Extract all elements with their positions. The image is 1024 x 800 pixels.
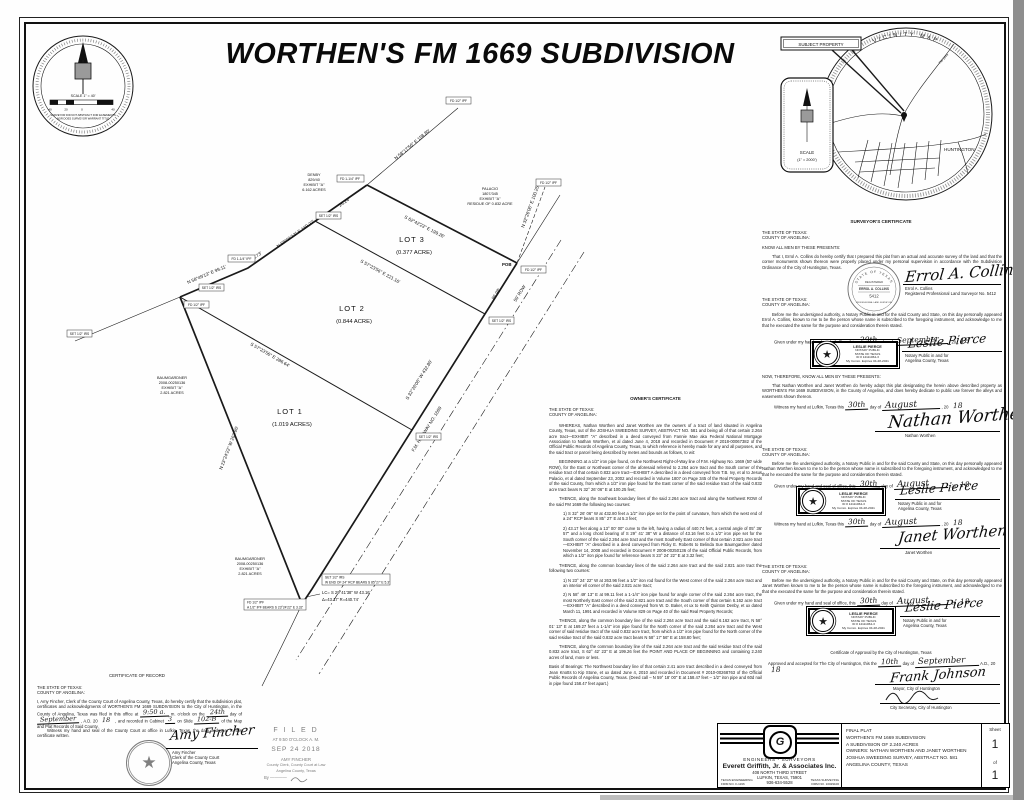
seal-bottom-text: PROFESSIONAL LAND SURVEYOR	[856, 301, 893, 304]
monument-label: SET 1/2" IRS	[319, 214, 339, 218]
scan-edge-bottom	[600, 795, 1013, 800]
bearing-label: N 23°24'22" W 263.96'	[218, 425, 239, 470]
svg-text:EXHIBIT "A": EXHIBIT "A"	[480, 197, 502, 201]
sheet-of: of	[981, 760, 1009, 765]
acknowledgment-text: Before me the undersigned authority, a N…	[762, 312, 1002, 328]
county-line: COUNTY OF ANGELINA:	[762, 569, 810, 574]
notary-stamp: ★ LESLIE PIERCE NOTARY PUBLIC STATE OF T…	[808, 608, 894, 634]
hand-slide: 102-B	[194, 716, 220, 724]
record-text: day of	[230, 711, 242, 716]
certificate-course: 2) 43.17 feet along a 13° 00' 00" curve …	[563, 526, 762, 559]
hand-cabinet: 3	[165, 717, 175, 724]
firm-type: ENGINEERS - SURVEYORS	[720, 757, 839, 762]
bar-scale-tick: 40	[48, 108, 52, 112]
bar-scale-label: SCALE 1" = 40'	[71, 94, 96, 98]
notary-seal-star-icon: ★	[812, 610, 834, 632]
bar-scale-tick: 40	[111, 108, 115, 112]
north-arrow-scale: SCALE 1" = 40' 40 20 0 40 SURVEYOR DID N…	[33, 36, 133, 136]
notary-stamp-text: LESLIE PIERCE NOTARY PUBLIC STATE OF TEX…	[827, 492, 880, 511]
acknowledgment-text: Before me the undersigned authority, a N…	[762, 461, 1002, 477]
adjoiner-denby: DENBY 829/40 EXHIBIT "A" 6.162 ACRES	[302, 173, 326, 192]
certificate-course: 2) N 58° 49' 13" E at 99.11 feet a 1-1/4…	[563, 592, 762, 614]
svg-text:EXHIBIT "A": EXHIBIT "A"	[240, 567, 262, 571]
adjoiner-baumgardner-1: BAUMGARDNER 2008-00250136 EXHIBIT "A" 2.…	[157, 376, 187, 395]
notary-stamp: ★ LESLIE PIERCE NOTARY PUBLIC STATE OF T…	[812, 341, 898, 367]
monument-label: SET 1/2" IRS	[325, 576, 345, 580]
surveyor-disclaimer: SURVEYOR DID NOT ABSTRACT FOR EASEMENTS	[50, 113, 116, 117]
bearing-label: S 57°23'56" E 286.64'	[250, 342, 291, 369]
monument-label: SET 1/2" IRS	[492, 319, 512, 323]
dedication-text: That Nathan Worthen and Janet Worthen do…	[762, 383, 1002, 399]
vicinity-scale-badge: SCALE (1" = 2000')	[781, 78, 833, 172]
filed-by-line: By ————	[250, 775, 342, 781]
day-of: day of	[870, 522, 881, 527]
badge-scale-label: SCALE	[800, 150, 814, 155]
hand-month: September	[37, 716, 79, 724]
signature-rule	[166, 748, 258, 749]
notary-stamp: ★ LESLIE PIERCE NOTARY PUBLIC STATE OF T…	[798, 488, 884, 514]
signature-rule	[880, 703, 1000, 704]
hand-day: 30th	[857, 598, 881, 607]
sheet-number: 1	[981, 737, 1009, 751]
hand-year: 18	[768, 666, 784, 673]
notary-line: My Comm. Expires 04-28-2021	[837, 627, 890, 631]
svg-text:RESIDUE OF 0.832 ACRE: RESIDUE OF 0.832 ACRE	[467, 202, 513, 206]
day-of: day of	[881, 601, 892, 606]
notary-seal-star-icon: ★	[802, 490, 824, 512]
record-text: , and recorded in Cabinet	[115, 718, 164, 723]
svg-text:EXHIBIT "A": EXHIBIT "A"	[162, 386, 184, 390]
seal-name: ERROL A. COLLINS	[859, 287, 889, 291]
filed-word: F I L E D	[250, 726, 342, 737]
segment-distance: 26.24'	[338, 197, 351, 208]
surveyor-seal: STATE OF TEXAS REGISTERED ERROL A. COLLI…	[848, 263, 900, 315]
acknowledgment-text: Before me the undersigned authority, a N…	[762, 578, 1002, 594]
bearing-label: N 58°17'56" E 158.80'	[393, 128, 431, 161]
hand-day: 30th	[845, 402, 869, 411]
secretary-caption: City Secretary, City of Huntington	[890, 705, 952, 710]
day-of: day of	[903, 661, 914, 666]
monument-label: SET 1/2" IRS	[70, 332, 90, 336]
monument-label: FD 1/2" IPF	[247, 601, 264, 605]
signature-rule	[902, 351, 1002, 352]
lot1-label: LOT 1	[277, 407, 303, 416]
monument-note: A 1/2" IPF BEARS S 23°24'22" E 3.32'	[247, 606, 303, 610]
bearing-label: N 58°01'13" E 169.27'	[276, 219, 316, 249]
monument-label: SET 1/2" IRS	[202, 286, 222, 290]
svg-text:BAUMGARDNER: BAUMGARDNER	[235, 557, 265, 561]
monument-label: FD 1/2" IPF	[450, 99, 467, 103]
certificate-paragraph: WHEREAS, Nathan Worthen and Janet Worthe…	[549, 423, 762, 456]
county-line: COUNTY OF ANGELINA:	[37, 690, 85, 695]
svg-text:2.821 ACRES: 2.821 ACRES	[160, 391, 184, 395]
county-line: COUNTY OF ANGELINA:	[762, 235, 810, 240]
county-line: COUNTY OF ANGELINA:	[549, 412, 762, 417]
certificate-paragraph: BEGINNING at a 1/2" iron pipe found, on …	[549, 459, 762, 492]
notary-caption: Angelina County, Texas	[905, 358, 949, 363]
certificate-paragraph: THENCE, along the common boundary line o…	[549, 618, 762, 640]
curve-data-label: Δ=43.17' R=440.74'	[322, 597, 359, 602]
witness-pre: Witness my hand at Lufkin, Texas this	[774, 405, 844, 410]
filed-time: AT 9:50 O'CLOCK A. M.	[250, 737, 342, 744]
monument-label: FD 1/2" IPF	[540, 181, 557, 185]
firm-eng-line: FIRM NO. F-1196	[721, 783, 753, 787]
svg-text:BAUMGARDNER: BAUMGARDNER	[157, 376, 187, 380]
svg-text:2.821 ACRES: 2.821 ACRES	[238, 572, 262, 576]
owners-certificate: OWNER'S CERTIFICATE THE STATE OF TEXAS: …	[549, 396, 762, 686]
svg-text:PALACIO: PALACIO	[482, 187, 498, 191]
janet-name-caption: Janet Worthen	[905, 550, 932, 555]
monument-label: FD 1/2" IPF	[188, 303, 205, 307]
page-title: WORTHEN'S FM 1669 SUBDIVISION	[200, 38, 760, 71]
certificate-paragraph: THENCE, along the common boundary line o…	[549, 644, 762, 660]
mayor-caption: Mayor, City of Huntington	[893, 686, 940, 691]
row-width-label: 50' ROW	[513, 284, 527, 303]
monument-label: FD 1-1/4" IPF	[231, 257, 251, 261]
lot2-label: LOT 2	[339, 304, 365, 313]
signature-rule	[900, 616, 1000, 617]
signature-rule	[903, 284, 1001, 285]
surveyor-disclaimer: NOR DOES SURVEYOR WARRANT TITLE	[57, 117, 110, 121]
bar-scale-tick: 0	[81, 108, 83, 112]
svg-text:EXHIBIT "A": EXHIBIT "A"	[304, 183, 326, 187]
seal-registered: REGISTERED	[865, 280, 883, 284]
county-court-seal: ★	[126, 740, 172, 786]
hand-year: 18	[99, 718, 113, 724]
bearing-label: N 58°49'13" E 99.11'	[186, 264, 227, 285]
adjoiner-baumgardner-2: BAUMGARDNER 2008-00250136 EXHIBIT "A" 2.…	[235, 557, 265, 576]
curve-chord-label: LC= S 29°41'38" W 43.16'	[322, 590, 371, 595]
certificate-paragraph: THENCE, along the common boundary lines …	[549, 563, 762, 574]
bearing-label: S 32°26'06" W 432.80'	[405, 359, 434, 401]
certificate-course: 1) S 32° 26' 06" W at 432.80 feet a 1/2"…	[563, 511, 762, 522]
nathan-name-caption: Nathan Worthen	[905, 433, 935, 438]
record-body: I, Amy Fincher, Clerk of the County Cour…	[37, 699, 242, 729]
road-label-fm1669: FM 1669	[938, 53, 950, 65]
notary-caption: Angelina County, Texas	[898, 506, 942, 511]
adjoiner-palacio: PALACIO 1807/345 EXHIBIT "A" RESIDUE OF …	[467, 187, 513, 206]
lot2-area: (0.844 ACRE)	[336, 319, 372, 325]
plat-info-line: A SUBDIVISION OF 2.240 ACRES	[846, 742, 978, 749]
record-text: on Slide	[177, 718, 193, 723]
record-text: , A.D. 20	[81, 718, 98, 723]
notary-stamp-text: LESLIE PIERCE NOTARY PUBLIC STATE OF TEX…	[837, 612, 890, 631]
firm-logo-monogram: G	[769, 731, 792, 754]
town-label: HUNTINGTON	[944, 147, 975, 152]
day-of: day of	[870, 405, 881, 410]
signature-rule	[875, 684, 1000, 685]
plat-info-line: OWNERS: NATHAN WORTHEN AND JANET WORTHEN	[846, 748, 978, 755]
svg-text:829/40: 829/40	[308, 178, 320, 182]
bearing-label: N 32°26'06" E 100.25'	[520, 184, 540, 228]
plat-info-line: JOSHUA SWEEDING SURVEY, ABSTRACT NO. 581	[846, 755, 978, 762]
plat-info-line: ANGELINA COUNTY, TEXAS	[846, 762, 978, 769]
monument-label: FD 1-1/4" IPF	[340, 177, 360, 181]
notary-seal-star-icon: ★	[816, 343, 838, 365]
know-all-men: KNOW ALL MEN BY THESE PRESENTS:	[762, 245, 840, 250]
hand-time: 9:50 a.	[140, 709, 169, 717]
sheet-total: 1	[981, 768, 1009, 782]
svg-text:2008-00250136: 2008-00250136	[159, 381, 186, 385]
certificate-course: 1) N 23° 24' 22" W at 263.96 feet a 1/2"…	[563, 578, 762, 589]
plat-info: FINAL PLAT WORTHEN'S FM 1669 SUBDIVISION…	[846, 728, 978, 769]
monument-label: FD 1/2" IPF	[525, 268, 542, 272]
firm-sur-no: TEXAS SURVEYING FIRM NO. 10029100	[811, 779, 839, 786]
signature-rule	[880, 548, 1000, 549]
given-pre: Given under my hand and seal of office, …	[774, 601, 856, 606]
road-extension-south	[262, 604, 302, 686]
firm-eng-no: TEXAS ENGINEERING FIRM NO. F-1196	[721, 779, 753, 786]
firm-sur-line: FIRM NO. 10029100	[811, 783, 839, 787]
notary-stamp-text: LESLIE PIERCE NOTARY PUBLIC STATE OF TEX…	[841, 345, 894, 364]
basis-of-bearings: Basis of Bearings: The Northwest boundar…	[549, 664, 762, 686]
plat-info-line: WORTHEN'S FM 1669 SUBDIVISION	[846, 735, 978, 742]
svg-text:DENBY: DENBY	[307, 173, 321, 177]
sheet-label: Sheet	[981, 727, 1009, 732]
filed-clerk-name: AMY FINCHER	[250, 757, 342, 764]
hand-day: 30th	[845, 519, 869, 528]
surveyors-certificate-heading: SURVEYOR'S CERTIFICATE	[760, 219, 1002, 224]
north-arrow-icon	[75, 42, 91, 94]
road-name-label: F.M. HIGHWAY NO. 1669	[411, 405, 443, 452]
subject-property-label: SUBJECT PROPERTY	[798, 42, 843, 47]
monument-note: W END OF 24" RCP BEARS S 85°27' E 5.3'	[325, 581, 390, 585]
svg-text:6.162 ACRES: 6.162 ACRES	[302, 188, 326, 192]
road-far-row-line	[319, 252, 584, 674]
firm-name: Everett Griffith, Jr. & Associates Inc.	[719, 763, 840, 770]
secretary-signature-squiggle	[886, 691, 938, 703]
clerk-county: Angelina County, Texas	[172, 760, 216, 765]
lot1-area: (1.019 ACRES)	[272, 422, 312, 428]
signature-rule	[895, 499, 1000, 500]
lot3-label: LOT 3	[399, 235, 425, 244]
seal-number: 5412	[869, 294, 879, 299]
svg-text:2008-00250136: 2008-00250136	[237, 562, 264, 566]
firm-logo: G	[763, 725, 797, 759]
filed-stamp: F I L E D AT 9:50 O'CLOCK A. M. SEP 24 2…	[250, 726, 342, 781]
monument-label: SET 1/2" IRS	[419, 435, 439, 439]
pob-label: POB	[502, 262, 512, 267]
notary-line: My Comm. Expires 04-28-2021	[827, 507, 880, 511]
approval-heading: Certificate of Approval by the City of H…	[760, 650, 1002, 655]
owners-certificate-heading: OWNER'S CERTIFICATE	[549, 396, 762, 402]
svg-text:1807/345: 1807/345	[482, 192, 498, 196]
record-heading: CERTIFICATE OF RECORD	[62, 673, 212, 679]
title-block-divider	[841, 724, 842, 787]
scan-edge-right	[1013, 0, 1024, 800]
notary-caption: Angelina County, Texas	[903, 623, 947, 628]
approval-pre: Approved and accepted for The City of Hu…	[768, 661, 877, 666]
bearing-label: S 57°23'56" E 221.16'	[360, 259, 402, 285]
filed-date: SEP 24 2018	[250, 745, 342, 755]
lot3-area: (0.377 ACRE)	[396, 250, 432, 256]
notary-line: My Comm. Expires 04-28-2021	[841, 360, 894, 364]
segment-distance: 86.98'	[491, 287, 502, 300]
hand-day: 10th	[878, 658, 902, 667]
surveyor-title: Registered Professional Land Surveyor No…	[905, 291, 996, 296]
badge-scale-value: (1" = 2000')	[797, 158, 817, 162]
bar-scale-tick: 20	[64, 108, 68, 112]
title-block: G ENGINEERS - SURVEYORS Everett Griffith…	[717, 723, 1010, 788]
signature-rule	[875, 431, 1000, 432]
certificate-paragraph: THENCE, along the Southeast boundary lin…	[549, 496, 762, 507]
county-line: COUNTY OF ANGELINA:	[762, 452, 810, 457]
county-line: COUNTY OF ANGELINA:	[762, 302, 810, 307]
plat-drawing: text{font-family:"Liberation Sans",sans-…	[0, 0, 1024, 800]
witness-pre: Witness my hand at Lufkin, Texas this	[774, 522, 844, 527]
plat-info-line: FINAL PLAT	[846, 728, 978, 735]
vicinity-map: VICINITY MAP HUNTINGTON FM 1669	[781, 28, 992, 200]
now-therefore: NOW, THEREFORE, KNOW ALL MEN BY THESE PR…	[762, 374, 881, 379]
bar-scale	[50, 100, 113, 105]
plat-sheet: text{font-family:"Liberation Sans",sans-…	[0, 0, 1024, 800]
